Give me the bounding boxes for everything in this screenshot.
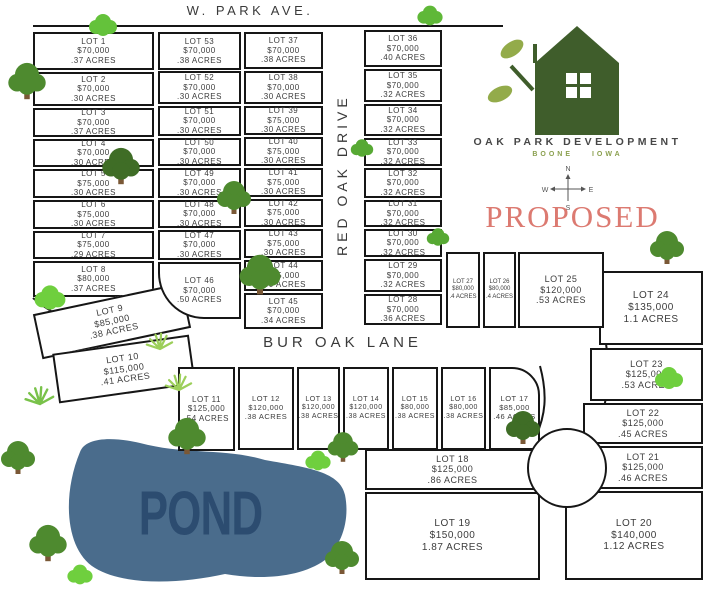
lot-id: LOT 4 — [81, 139, 106, 148]
lot-acres: .30 ACRES — [71, 219, 116, 228]
lot-parcel-16: LOT 16 $80,000 .38 ACRES — [441, 367, 486, 450]
lot-acres: 1.12 ACRES — [603, 541, 664, 553]
lot-acres: .29 ACRES — [71, 250, 116, 259]
lot-price: $70,000 — [183, 116, 215, 125]
lot-acres: .53 ACRES — [621, 380, 671, 391]
lot-parcel-5: LOT 5 $75,000 .30 ACRES — [33, 169, 154, 198]
lot-price: $70,000 — [387, 44, 419, 53]
lot-acres: .30 ACRES — [177, 92, 222, 101]
lot-id: LOT 32 — [388, 169, 418, 178]
lot-parcel-17: LOT 17 $85,000 .46 ACRES — [489, 367, 540, 450]
lot-parcel-3: LOT 3 $70,000 .37 ACRES — [33, 108, 154, 137]
lot-id: LOT 40 — [269, 137, 299, 146]
lot-acres: .37 ACRES — [71, 284, 116, 293]
lot-price: $120,000 — [302, 404, 335, 412]
lot-id: LOT 36 — [388, 34, 418, 43]
lot-id: LOT 24 — [633, 290, 669, 302]
lot-acres: .30 ACRES — [261, 125, 306, 134]
lot-parcel-49: LOT 49 $70,000 .30 ACRES — [158, 168, 241, 198]
lot-parcel-42: LOT 42 $75,000 .30 ACRES — [244, 199, 323, 227]
lot-price: $70,000 — [183, 286, 215, 295]
lot-parcel-45: LOT 45 $70,000 .34 ACRES — [244, 293, 323, 329]
lot-parcel-6: LOT 6 $75,000 .30 ACRES — [33, 200, 154, 229]
lot-id: LOT 19 — [434, 518, 470, 530]
lot-parcel-24: LOT 24 $135,000 1.1 ACRES — [599, 271, 703, 345]
lot-acres: .30 ACRES — [177, 250, 222, 259]
lot-parcel-38: LOT 38 $70,000 .30 ACRES — [244, 71, 323, 104]
lot-id: LOT 47 — [185, 231, 215, 240]
logo-subtitle: BOONE IOWA — [445, 151, 710, 158]
lot-price: $75,000 — [267, 178, 299, 187]
lot-id: LOT 6 — [81, 200, 106, 209]
lot-price: $80,000 — [77, 274, 109, 283]
lot-id: LOT 39 — [269, 106, 299, 115]
lot-acres: .30 ACRES — [177, 157, 222, 166]
lot-parcel-50: LOT 50 $70,000 .30 ACRES — [158, 138, 241, 166]
lot-price: $80,000 — [401, 404, 430, 412]
lot-price: $70,000 — [267, 306, 299, 315]
proposed-label: PROPOSED — [460, 199, 685, 235]
lot-price: $70,000 — [77, 84, 109, 93]
lot-id: LOT 15 — [402, 396, 428, 404]
lot-id: LOT 26 — [490, 279, 510, 286]
lot-acres: .36 ACRES — [381, 314, 426, 323]
lot-parcel-25: LOT 25 $120,000 .53 ACRES — [518, 252, 604, 328]
lot-id: LOT 38 — [269, 73, 299, 82]
lot-id: LOT 41 — [269, 168, 299, 177]
lot-acres: 1.87 ACRES — [422, 542, 483, 554]
lot-acres: .4 ACRES — [449, 294, 476, 301]
lot-price: $70,000 — [183, 178, 215, 187]
lot-acres: .30 ACRES — [71, 158, 116, 167]
lot-id: LOT 53 — [185, 37, 215, 46]
lot-parcel-12: LOT 12 $120,000 .38 ACRES — [238, 367, 294, 450]
lot-id: LOT 31 — [388, 199, 418, 208]
lot-id: LOT 49 — [185, 169, 215, 178]
lot-id: LOT 44 — [269, 261, 299, 270]
lot-parcel-37: LOT 37 $70,000 .38 ACRES — [244, 32, 323, 69]
lot-parcel-53: LOT 53 $70,000 .38 ACRES — [158, 32, 241, 70]
lot-price: $125,000 — [432, 464, 474, 475]
lot-price: $80,000 — [449, 404, 478, 412]
lot-price: $75,000 — [267, 239, 299, 248]
plat-map: N S W E W. PARK AVE. RED OAK D — [0, 0, 715, 599]
lot-id: LOT 30 — [388, 229, 418, 238]
lot-acres: .30 ACRES — [261, 248, 306, 257]
lot-id: LOT 50 — [185, 138, 215, 147]
lot-id: LOT 22 — [627, 408, 660, 419]
lot-parcel-20: LOT 20 $140,000 1.12 ACRES — [565, 491, 703, 580]
lot-acres: .30 ACRES — [261, 156, 306, 165]
lot-acres: .54 ACRES — [184, 414, 229, 423]
lot-parcel-22: LOT 22 $125,000 .45 ACRES — [583, 403, 703, 444]
lot-parcel-48: LOT 48 $70,000 .30 ACRES — [158, 200, 241, 228]
street-label-w-park-ave: W. PARK AVE. — [150, 3, 350, 18]
lot-id: LOT 11 — [192, 395, 221, 404]
lot-id: LOT 43 — [269, 229, 299, 238]
lot-parcel-14: LOT 14 $120,000 .38 ACRES — [343, 367, 389, 450]
cul-de-sac — [527, 428, 607, 508]
lot-parcel-28: LOT 28 $70,000 .36 ACRES — [364, 294, 442, 325]
lot-id: LOT 1 — [81, 37, 106, 46]
lot-acres: .30 ACRES — [261, 280, 306, 289]
lot-acres: .40 ACRES — [381, 53, 426, 62]
lot-acres: .32 ACRES — [381, 280, 426, 289]
lot-price: $70,000 — [183, 46, 215, 55]
lot-parcel-13: LOT 13 $120,000 .38 ACRES — [297, 367, 340, 450]
lot-parcel-44: LOT 44 $75,000 .30 ACRES — [244, 260, 323, 291]
lot-acres: .38 ACRES — [395, 413, 435, 421]
lot-price: $80,000 — [489, 286, 511, 293]
lot-acres: .30 ACRES — [177, 126, 222, 135]
lot-price: $70,000 — [77, 148, 109, 157]
lot-acres: .38 ACRES — [177, 56, 222, 65]
lot-id: LOT 21 — [627, 452, 660, 463]
street-label-red-oak-drive: RED OAK DRIVE — [330, 58, 354, 293]
lot-price: $70,000 — [387, 81, 419, 90]
lot-parcel-27: LOT 27 $80,000 .4 ACRES — [446, 252, 480, 328]
lot-acres: .37 ACRES — [71, 56, 116, 65]
lot-id: LOT 42 — [269, 199, 299, 208]
lot-parcel-32: LOT 32 $70,000 .32 ACRES — [364, 168, 442, 198]
lot-price: $70,000 — [387, 305, 419, 314]
lot-acres: .32 ACRES — [381, 90, 426, 99]
lot-price: $120,000 — [349, 404, 382, 412]
lot-price: $80,000 — [452, 286, 474, 293]
lot-id: LOT 20 — [616, 518, 652, 530]
lot-parcel-30: LOT 30 $70,000 .32 ACRES — [364, 229, 442, 257]
lot-parcel-33: LOT 33 $70,000 .32 ACRES — [364, 138, 442, 166]
lot-id: LOT 25 — [545, 274, 578, 285]
lot-acres: .45 ACRES — [618, 429, 668, 440]
lot-price: $120,000 — [540, 285, 582, 296]
lot-price: $70,000 — [183, 83, 215, 92]
lot-acres: .30 ACRES — [177, 188, 222, 197]
lot-price: $150,000 — [430, 530, 476, 542]
lot-price: $125,000 — [188, 404, 225, 413]
lot-parcel-2: LOT 2 $70,000 .30 ACRES — [33, 72, 154, 106]
lot-acres: .34 ACRES — [261, 316, 306, 325]
lot-id: LOT 45 — [269, 297, 299, 306]
lot-price: $70,000 — [387, 178, 419, 187]
lot-acres: .32 ACRES — [381, 125, 426, 134]
lot-price: $70,000 — [387, 271, 419, 280]
lot-parcel-36: LOT 36 $70,000 .40 ACRES — [364, 30, 442, 67]
lot-id: LOT 35 — [388, 71, 418, 80]
lot-acres: 1.1 ACRES — [623, 314, 678, 326]
lot-parcel-18: LOT 18 $125,000 .86 ACRES — [365, 449, 540, 490]
lot-price: $70,000 — [387, 238, 419, 247]
lot-parcel-39: LOT 39 $75,000 .30 ACRES — [244, 106, 323, 135]
lot-acres: .30 ACRES — [261, 187, 306, 196]
lot-price: $75,000 — [77, 210, 109, 219]
lot-parcel-31: LOT 31 $70,000 .32 ACRES — [364, 200, 442, 227]
street-label-bur-oak-lane: BUR OAK LANE — [235, 334, 450, 351]
logo-title: OAK PARK DEVELOPMENT — [445, 136, 710, 148]
lot-price: $75,000 — [77, 240, 109, 249]
lot-acres: .50 ACRES — [177, 295, 222, 304]
lot-price: $75,000 — [77, 179, 109, 188]
lot-id: LOT 52 — [185, 73, 215, 82]
lot-price: $75,000 — [267, 116, 299, 125]
lot-id: LOT 48 — [185, 200, 215, 209]
lot-price: $125,000 — [622, 462, 664, 473]
lot-id: LOT 51 — [185, 107, 215, 116]
lot-price: $125,000 — [622, 418, 664, 429]
lot-parcel-41: LOT 41 $75,000 .30 ACRES — [244, 168, 323, 197]
lot-parcel-51: LOT 51 $70,000 .30 ACRES — [158, 106, 241, 136]
lot-price: $75,000 — [267, 208, 299, 217]
lot-price: $135,000 — [628, 302, 674, 314]
lot-id: LOT 18 — [436, 454, 469, 465]
lot-acres: .46 ACRES — [618, 473, 668, 484]
lot-price: $70,000 — [267, 83, 299, 92]
lot-parcel-52: LOT 52 $70,000 .30 ACRES — [158, 71, 241, 104]
lot-parcel-35: LOT 35 $70,000 .32 ACRES — [364, 69, 442, 102]
lot-id: LOT 5 — [81, 169, 106, 178]
lot-acres: .30 ACRES — [177, 219, 222, 228]
lot-acres: .30 ACRES — [261, 92, 306, 101]
lot-price: $140,000 — [611, 530, 657, 542]
lot-price: $75,000 — [267, 147, 299, 156]
lot-price: $70,000 — [183, 147, 215, 156]
lot-price: $125,000 — [626, 369, 668, 380]
lot-acres: .53 ACRES — [536, 295, 586, 306]
lot-acres: .38 ACRES — [245, 413, 287, 422]
lot-price: $75,000 — [267, 271, 299, 280]
lot-parcel-47: LOT 47 $70,000 .30 ACRES — [158, 230, 241, 260]
lot-id: LOT 23 — [630, 359, 663, 370]
lot-parcel-23: LOT 23 $125,000 .53 ACRES — [590, 348, 703, 401]
lot-price: $70,000 — [387, 115, 419, 124]
lot-price: $70,000 — [183, 240, 215, 249]
lot-acres: .30 ACRES — [71, 94, 116, 103]
lot-acres: .4 ACRES — [486, 294, 513, 301]
lot-acres: .32 ACRES — [381, 157, 426, 166]
lot-acres: .37 ACRES — [71, 127, 116, 136]
lot-id: LOT 28 — [388, 295, 418, 304]
lot-price: $70,000 — [387, 147, 419, 156]
lot-price: $70,000 — [267, 46, 299, 55]
lot-id: LOT 33 — [388, 138, 418, 147]
lot-id: LOT 46 — [185, 276, 215, 285]
lot-acres: .32 ACRES — [381, 248, 426, 257]
lot-id: LOT 29 — [388, 261, 418, 270]
lot-price: $70,000 — [77, 118, 109, 127]
lot-acres: .38 ACRES — [261, 55, 306, 64]
pond-label: POND — [128, 477, 273, 550]
lot-id: LOT 2 — [81, 75, 106, 84]
lot-id: LOT 7 — [81, 231, 106, 240]
lot-id: LOT 14 — [353, 396, 379, 404]
lot-parcel-43: LOT 43 $75,000 .30 ACRES — [244, 229, 323, 258]
lot-acres: .38 ACRES — [299, 413, 339, 421]
lot-parcel-34: LOT 34 $70,000 .32 ACRES — [364, 104, 442, 136]
lot-id: LOT 8 — [81, 265, 106, 274]
lot-acres: .32 ACRES — [381, 188, 426, 197]
lot-id: LOT 27 — [453, 279, 473, 286]
lot-id: LOT 37 — [269, 36, 299, 45]
lot-id: LOT 3 — [81, 108, 106, 117]
lot-price: $70,000 — [77, 46, 109, 55]
lot-acres: .32 ACRES — [381, 218, 426, 227]
lot-parcel-26: LOT 26 $80,000 .4 ACRES — [483, 252, 516, 328]
lot-price: $70,000 — [387, 209, 419, 218]
lot-parcel-1: LOT 1 $70,000 .37 ACRES — [33, 32, 154, 70]
lot-parcel-40: LOT 40 $75,000 .30 ACRES — [244, 137, 323, 166]
lot-id: LOT 13 — [305, 396, 331, 404]
lot-parcel-4: LOT 4 $70,000 .30 ACRES — [33, 139, 154, 167]
lot-parcel-29: LOT 29 $70,000 .32 ACRES — [364, 259, 442, 292]
lot-parcel-19: LOT 19 $150,000 1.87 ACRES — [365, 492, 540, 580]
lots-layer: LOT 1 $70,000 .37 ACRES LOT 2 $70,000 .3… — [0, 0, 715, 599]
lot-acres: .46 ACRES — [493, 413, 535, 422]
lot-id: LOT 34 — [388, 106, 418, 115]
lot-acres: .30 ACRES — [261, 218, 306, 227]
lot-parcel-15: LOT 15 $80,000 .38 ACRES — [392, 367, 438, 450]
lot-parcel-7: LOT 7 $75,000 .29 ACRES — [33, 231, 154, 259]
lot-acres: .38 ACRES — [346, 413, 386, 421]
lot-price: $70,000 — [183, 209, 215, 218]
lot-id: LOT 16 — [450, 396, 476, 404]
lot-acres: .30 ACRES — [71, 188, 116, 197]
lot-acres: .38 ACRES — [444, 413, 484, 421]
lot-acres: .86 ACRES — [427, 475, 477, 486]
lot-parcel-11: LOT 11 $125,000 .54 ACRES — [178, 367, 235, 451]
